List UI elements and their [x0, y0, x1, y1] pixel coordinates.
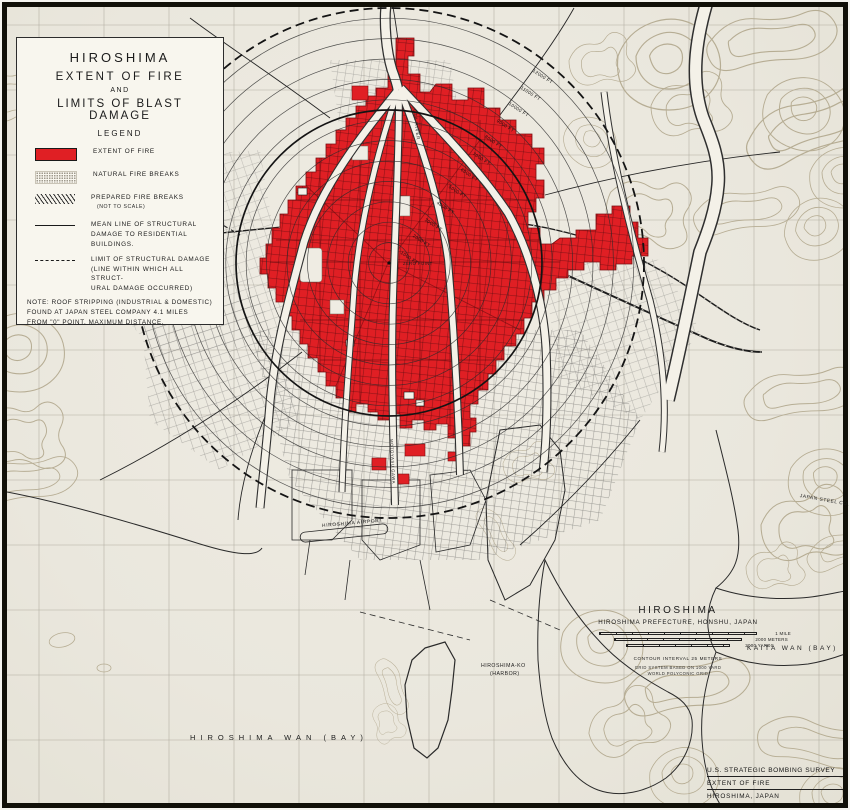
scale-bar-mile [599, 632, 757, 635]
map-title: HIROSHIMA [583, 605, 773, 616]
legend-item-line1: LIMIT OF STRUCTURAL DAMAGE [91, 255, 215, 265]
contour-interval-note: CONTOUR INTERVAL 25 METERS [583, 656, 773, 661]
legend-item-limit-line: LIMIT OF STRUCTURAL DAMAGE (LINE WITHIN … [35, 255, 215, 293]
zero-point-dot [387, 261, 390, 264]
legend-item-prepared-fire-breaks: PREPARED FIRE BREAKS (NOT TO SCALE) [35, 193, 215, 211]
legend-title-3: AND [25, 87, 215, 94]
legend-item-line1: MEAN LINE OF STRUCTURAL [91, 220, 215, 230]
legend-item-extent-of-fire: EXTENT OF FIRE [35, 147, 215, 161]
legend-item-note: (NOT TO SCALE) [97, 204, 184, 212]
map-scan: 1000 FT 2000 FT 3000 FT 4000 FT 5000 FT … [0, 0, 850, 810]
dashed-line-swatch [35, 260, 75, 261]
map-subtitle: HIROSHIMA PREFECTURE, HONSHU, JAPAN [583, 619, 773, 626]
legend-item-line2: DAMAGE TO RESIDENTIAL BUILDINGS. [91, 230, 215, 249]
legend-box: HIROSHIMA EXTENT OF FIRE AND LIMITS OF B… [16, 37, 224, 325]
stipple-swatch [35, 171, 77, 184]
legend-heading: LEGEND [25, 129, 215, 138]
grid-note-line2: WORLD POLYCONIC GRID [583, 671, 773, 677]
scale-label-yards: 2000 YARDS [745, 643, 774, 648]
legend-note-line1: NOTE: ROOF STRIPPING (INDUSTRIAL & DOMES… [27, 298, 215, 308]
map-paper: 1000 FT 2000 FT 3000 FT 4000 FT 5000 FT … [7, 7, 843, 803]
legend-note-line2: FOUND AT JAPAN STEEL COMPANY 4.1 MILES [27, 308, 215, 318]
label-harbor-line1: HIROSHIMA-KO [481, 664, 526, 669]
scale-label-mile: 1 MILE [775, 631, 791, 636]
legend-item-natural-fire-breaks: NATURAL FIRE BREAKS [35, 170, 215, 184]
grid-system-note: GRID SYSTEM BASED ON 1000 YARD WORLD POL… [583, 665, 773, 678]
scale-bar-yards [626, 644, 730, 647]
legend-item-line2: (LINE WITHIN WHICH ALL STRUCT- [91, 265, 215, 284]
legend-title-2: EXTENT OF FIRE [25, 71, 215, 83]
legend-item-label: NATURAL FIRE BREAKS [93, 170, 179, 180]
label-harbor-line2: (HARBOR) [490, 672, 520, 677]
hatch-swatch [35, 194, 75, 204]
credit-location: HIROSHIMA, JAPAN [707, 790, 843, 800]
legend-item-mean-line: MEAN LINE OF STRUCTURAL DAMAGE TO RESIDE… [35, 220, 215, 249]
scale-bar-meters [614, 638, 742, 641]
legend-title-4: LIMITS OF BLAST DAMAGE [25, 98, 215, 122]
legend-note-line3: FROM "0" POINT. MAXIMUM DISTANCE. [27, 318, 215, 328]
solid-line-swatch [35, 225, 75, 226]
legend-note: NOTE: ROOF STRIPPING (INDUSTRIAL & DOMES… [27, 298, 215, 329]
credit-survey: U.S. STRATEGIC BOMBING SURVEY [707, 767, 843, 777]
scale-label-meters: 2000 METERS [755, 637, 788, 642]
legend-title-1: HIROSHIMA [25, 50, 215, 65]
legend-item-line3: URAL DAMAGE OCCURRED) [91, 284, 215, 294]
label-hiroshima-wan: HIROSHIMA WAN (BAY) [190, 734, 368, 742]
credit-block: U.S. STRATEGIC BOMBING SURVEY EXTENT OF … [707, 767, 843, 800]
credit-subject: EXTENT OF FIRE [707, 777, 843, 790]
zero-point-label: ZERO POINT [403, 262, 433, 266]
fire-swatch [35, 148, 77, 161]
legend-item-label: PREPARED FIRE BREAKS [91, 194, 184, 201]
title-block: HIROSHIMA HIROSHIMA PREFECTURE, HONSHU, … [583, 605, 773, 678]
legend-item-label: EXTENT OF FIRE [93, 147, 155, 157]
